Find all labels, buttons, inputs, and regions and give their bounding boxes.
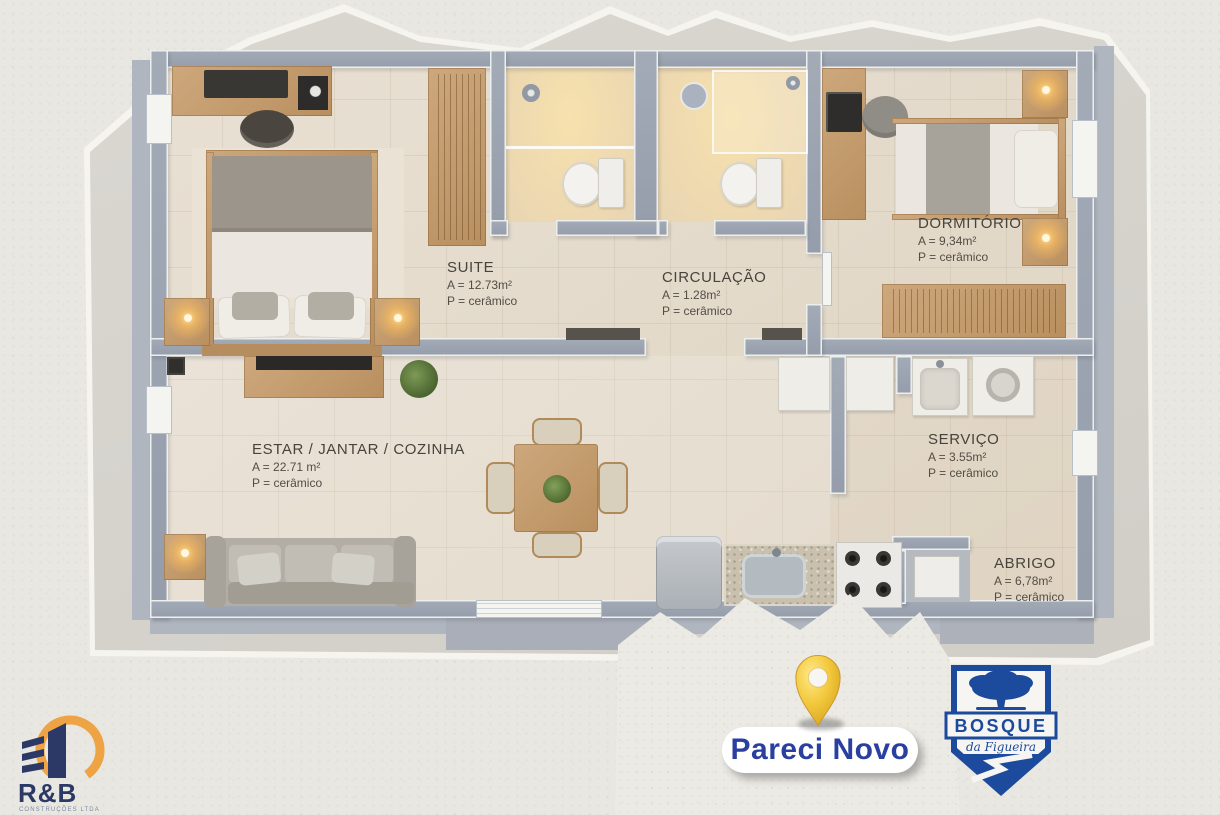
faucet	[772, 548, 781, 557]
accent-pillow	[232, 292, 278, 320]
washer-door	[986, 368, 1020, 402]
wall	[806, 304, 822, 356]
wall	[892, 536, 970, 550]
throw-pillow	[237, 552, 282, 586]
monitor	[826, 92, 862, 132]
room-floor: P = cerâmico	[252, 476, 465, 492]
suite-desk-chair	[240, 110, 294, 148]
pillow	[1014, 130, 1058, 208]
room-name: SUITE	[447, 258, 517, 278]
room-floor: P = cerâmico	[447, 294, 517, 310]
faucet	[936, 360, 944, 368]
wall	[556, 220, 658, 236]
bed-blanket	[926, 124, 990, 214]
burner	[876, 582, 891, 597]
laundry-basin	[920, 368, 960, 410]
dining-chair	[598, 462, 628, 514]
shower-head	[522, 84, 540, 102]
cabinet	[846, 357, 894, 411]
wardrobe-hangers	[433, 74, 481, 240]
suite-door-recess	[566, 328, 640, 340]
suite-bed-blanket	[212, 156, 372, 232]
room-area: A = 1.28m²	[662, 288, 766, 304]
lamp	[1042, 234, 1050, 242]
room-name: SERVIÇO	[928, 430, 999, 450]
utility-box	[914, 556, 960, 598]
lamp	[1042, 86, 1050, 94]
room-name: ABRIGO	[994, 554, 1064, 574]
sofa-cushion	[284, 544, 338, 584]
sofa-backrest	[228, 582, 414, 604]
exterior-band-left	[132, 60, 150, 620]
refrigerator	[656, 536, 722, 610]
room-area: A = 9,34m²	[918, 234, 1022, 250]
wall	[714, 220, 806, 236]
cabinet	[778, 357, 830, 411]
suite-picture-frame	[298, 76, 328, 110]
shower-head	[786, 76, 800, 90]
dining-chair	[486, 462, 516, 514]
kitchen-sink	[742, 554, 806, 598]
project-subtitle: da Figueira	[966, 740, 1036, 754]
room-name: CIRCULAÇÃO	[662, 268, 766, 288]
room-floor: P = cerâmico	[994, 590, 1064, 606]
toilet-tank	[756, 158, 782, 208]
room-label-suite: SUITE A = 12.73m² P = cerâmico	[447, 258, 517, 309]
room-floor: P = cerâmico	[662, 304, 766, 320]
window	[146, 94, 172, 144]
room-label-servico: SERVIÇO A = 3.55m² P = cerâmico	[928, 430, 999, 481]
bedroom-desk	[822, 68, 866, 220]
room-name: DORMITÓRIO	[918, 214, 1022, 234]
room-label-dormitorio: DORMITÓRIO A = 9,34m² P = cerâmico	[918, 214, 1022, 265]
rb-logo: R&B CONSTRUÇÕES LTDA	[6, 710, 118, 814]
wall	[806, 50, 822, 254]
table-plant	[543, 475, 571, 503]
room-label-estar: ESTAR / JANTAR / COZINHA A = 22.71 m² P …	[252, 440, 465, 491]
driveway-apron	[940, 618, 1094, 644]
lamp	[184, 314, 192, 322]
room-label-circulacao: CIRCULAÇÃO A = 1.28m² P = cerâmico	[662, 268, 766, 319]
burner	[845, 582, 860, 597]
accent-pillow	[308, 292, 354, 320]
wall	[830, 356, 846, 494]
window	[1072, 120, 1098, 198]
room-label-abrigo: ABRIGO A = 6,78m² P = cerâmico	[994, 554, 1064, 605]
suite-bed-duvet	[212, 232, 372, 298]
suite-tv	[204, 70, 288, 98]
wall	[634, 50, 658, 236]
suite-bed-fold	[212, 228, 372, 232]
toilet	[562, 162, 602, 206]
wall	[490, 50, 506, 236]
electrical-box	[167, 357, 185, 375]
shower-glass	[506, 146, 634, 149]
pendant-light	[680, 82, 708, 110]
location-pill: Pareci Novo	[722, 727, 918, 773]
lamp	[394, 314, 402, 322]
bosque-shield-logo: BOSQUE da Figueira	[944, 656, 1058, 802]
location-pin-icon	[793, 654, 843, 728]
project-title: BOSQUE	[954, 716, 1047, 736]
developer-subtitle: CONSTRUÇÕES LTDA	[19, 806, 100, 813]
room-area: A = 12.73m²	[447, 278, 517, 294]
dining-chair	[532, 418, 582, 446]
wall	[896, 356, 912, 394]
wall	[658, 220, 668, 236]
suite-wardrobe	[428, 68, 486, 246]
burner	[845, 551, 860, 566]
bedroom-door-leaf	[822, 252, 832, 306]
suite-headboard	[202, 344, 382, 356]
wall	[490, 220, 508, 236]
hall-door-recess	[762, 328, 802, 340]
toilet-tank	[598, 158, 624, 208]
room-name: ESTAR / JANTAR / COZINHA	[252, 440, 465, 460]
location-label: Pareci Novo	[731, 733, 910, 766]
throw-pillow	[331, 552, 375, 586]
sofa-armrest	[204, 536, 226, 608]
wall	[744, 338, 1094, 356]
window	[1072, 430, 1098, 476]
room-floor: P = cerâmico	[928, 466, 999, 482]
developer-name: R&B	[18, 778, 77, 808]
room-floor: P = cerâmico	[918, 250, 1022, 266]
burner	[876, 551, 891, 566]
tv	[256, 356, 372, 370]
plant	[400, 360, 438, 398]
floor-plan-poster: SUITE A = 12.73m² P = cerâmico CIRCULAÇÃ…	[0, 0, 1220, 815]
dining-chair	[532, 532, 582, 558]
room-area: A = 22.71 m²	[252, 460, 465, 476]
window	[146, 386, 172, 434]
bedroom-wardrobe	[882, 284, 1066, 338]
sliding-glass-door	[476, 600, 602, 618]
room-area: A = 3.55m²	[928, 450, 999, 466]
toilet	[720, 162, 760, 206]
lamp	[181, 549, 189, 557]
wardrobe-hangers	[888, 289, 1060, 333]
room-area: A = 6,78m²	[994, 574, 1064, 590]
headboard	[1058, 118, 1066, 220]
